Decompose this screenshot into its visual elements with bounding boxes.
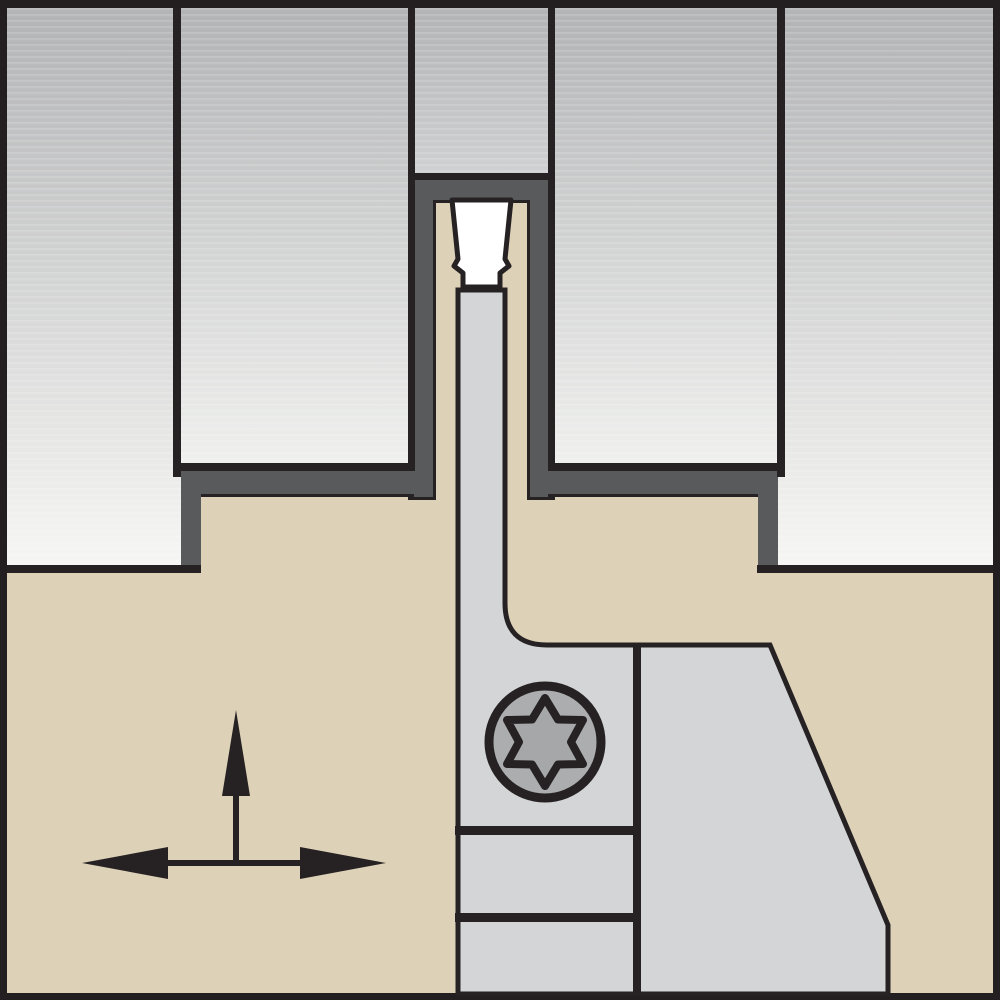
arrow-left-head bbox=[82, 847, 168, 879]
tool-detail-overlay bbox=[0, 0, 1000, 1000]
cutting-insert bbox=[452, 200, 511, 287]
arrow-up-shaft bbox=[233, 794, 239, 864]
holder-clamp-joint-upper bbox=[455, 826, 641, 835]
arrow-up-head bbox=[222, 710, 250, 796]
arrow-right-head bbox=[300, 847, 386, 879]
holder-clamp-joint-lower bbox=[455, 913, 641, 922]
blade-and-holder-profile bbox=[458, 290, 888, 994]
feed-direction-arrows-icon bbox=[82, 710, 386, 879]
arrow-horizontal-shaft bbox=[160, 860, 308, 866]
torx-clamp-screw-icon bbox=[489, 686, 601, 798]
holder-vertical-joint-line bbox=[633, 645, 641, 994]
diagram-canvas bbox=[0, 0, 1000, 1000]
